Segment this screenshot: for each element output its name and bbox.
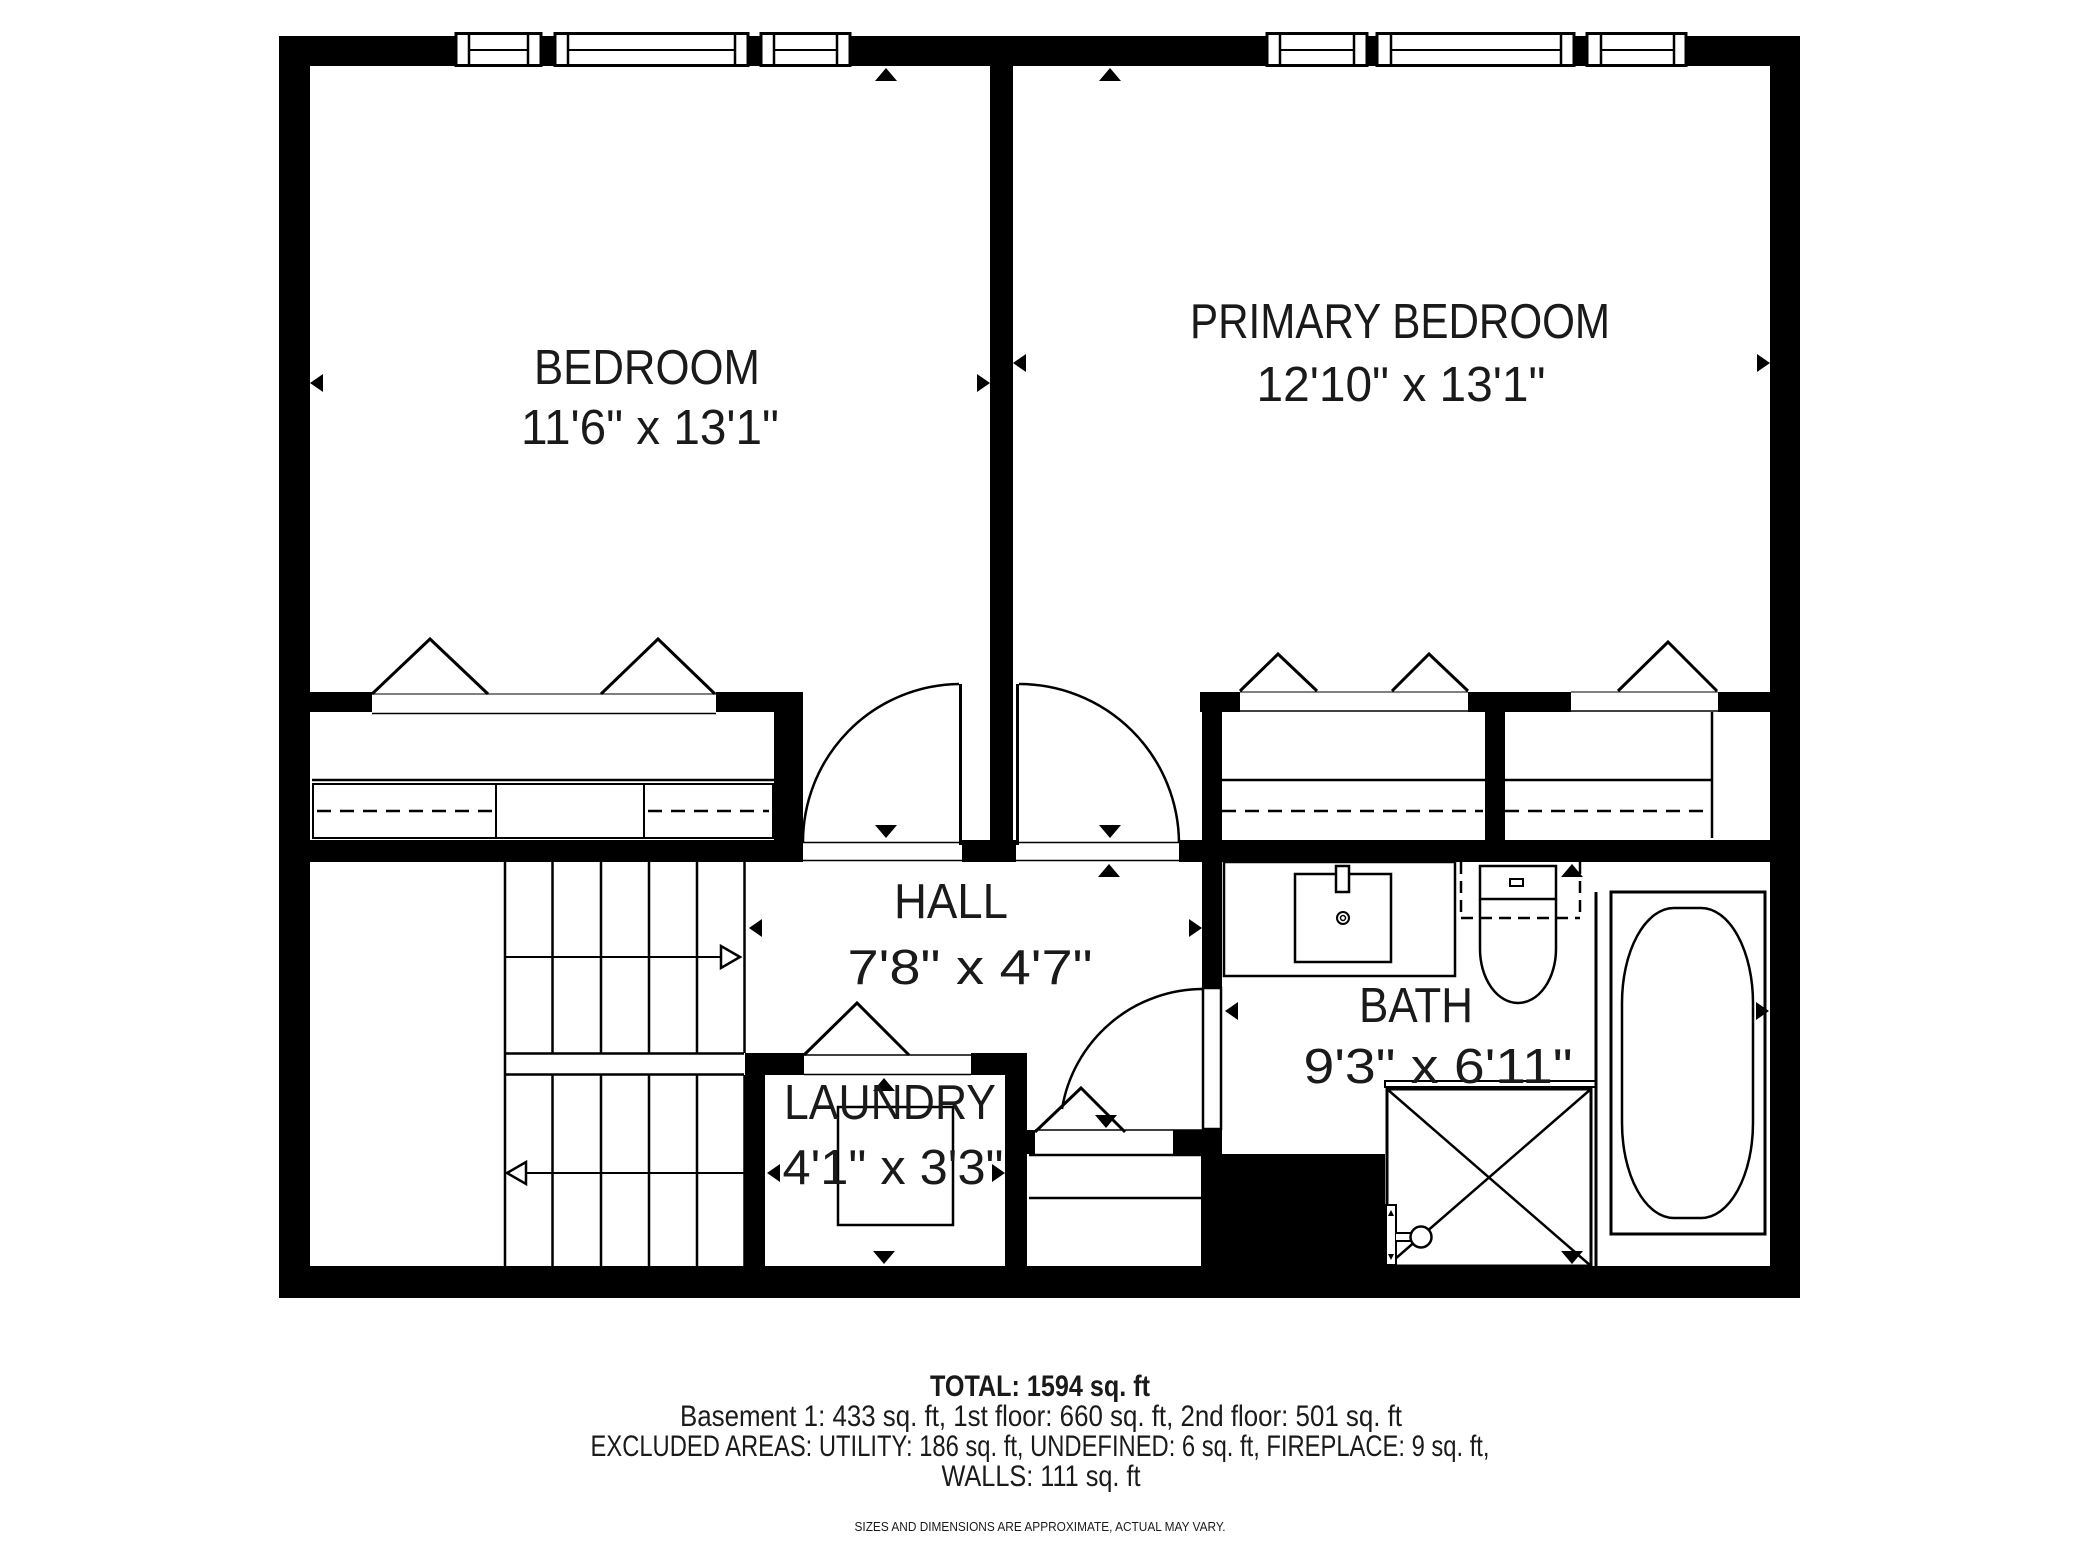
svg-text:PRIMARY BEDROOM: PRIMARY BEDROOM [1190,295,1610,349]
svg-text:TOTAL: 1594 sq. ft: TOTAL: 1594 sq. ft [930,1370,1150,1403]
svg-text:7'8" x 4'7": 7'8" x 4'7" [848,941,1093,995]
svg-text:BATH: BATH [1359,979,1473,1033]
svg-text:LAUNDRY: LAUNDRY [784,1076,996,1130]
svg-text:Basement 1: 433 sq. ft, 1st fl: Basement 1: 433 sq. ft, 1st floor: 660 s… [680,1400,1403,1433]
svg-text:SIZES AND DIMENSIONS ARE APPRO: SIZES AND DIMENSIONS ARE APPROXIMATE, AC… [855,1519,1226,1534]
svg-text:11'6" x 13'1": 11'6" x 13'1" [521,401,779,455]
svg-text:BEDROOM: BEDROOM [534,341,760,395]
svg-text:HALL: HALL [894,875,1008,929]
svg-text:4'1" x 3'3": 4'1" x 3'3" [783,1141,1004,1195]
svg-text:WALLS: 111 sq. ft: WALLS: 111 sq. ft [942,1460,1142,1493]
svg-text:9'3" x 6'11": 9'3" x 6'11" [1304,1040,1573,1094]
svg-text:12'10" x 13'1": 12'10" x 13'1" [1257,358,1546,412]
svg-text:EXCLUDED AREAS: UTILITY: 186 s: EXCLUDED AREAS: UTILITY: 186 sq. ft, UND… [591,1430,1490,1463]
